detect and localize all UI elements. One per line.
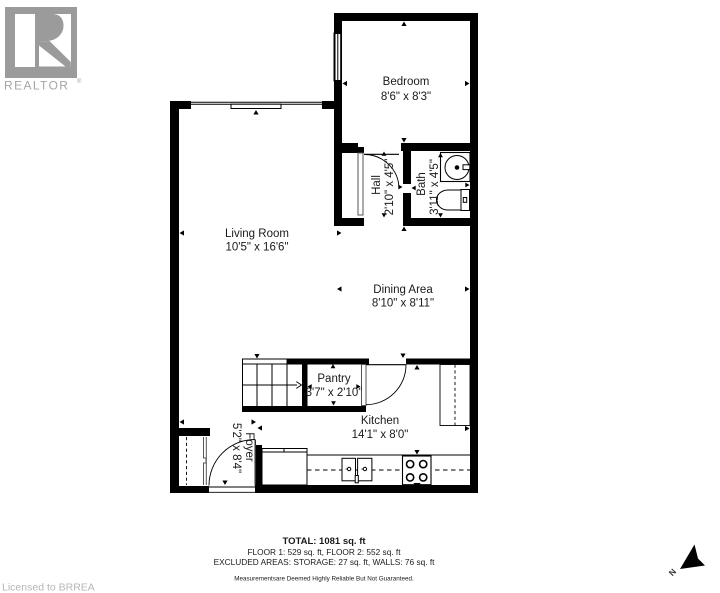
svg-text:Kitchen: Kitchen (361, 415, 399, 427)
svg-text:Pantry: Pantry (317, 373, 350, 385)
svg-text:REALTOR: REALTOR (4, 79, 69, 93)
svg-text:8'6" x 8'3": 8'6" x 8'3" (381, 91, 431, 103)
svg-text:8'10" x 8'11": 8'10" x 8'11" (372, 298, 434, 310)
svg-text:Bath: Bath (416, 172, 428, 196)
svg-text:5'2" x 8'4": 5'2" x 8'4" (230, 423, 242, 473)
svg-text:10'5" x 16'6": 10'5" x 16'6" (225, 242, 288, 254)
svg-text:®: ® (77, 78, 82, 85)
svg-text:Measurementsare Deemed Highly: Measurementsare Deemed Highly Reliable B… (234, 575, 414, 582)
svg-text:Hall: Hall (371, 175, 383, 195)
svg-text:Licensed to BRREA: Licensed to BRREA (2, 582, 95, 593)
svg-text:Living Room: Living Room (225, 228, 289, 240)
svg-text:Foyer: Foyer (243, 432, 255, 462)
svg-text:2'10" x 4'5": 2'10" x 4'5" (384, 159, 396, 216)
svg-text:Bedroom: Bedroom (383, 76, 430, 88)
svg-text:Dining Area: Dining Area (373, 284, 433, 296)
svg-text:TOTAL: 1081 sq. ft: TOTAL: 1081 sq. ft (282, 536, 366, 547)
svg-text:FLOOR 1: 529 sq. ft, FLOOR 2:: FLOOR 1: 529 sq. ft, FLOOR 2: 552 sq. ft (247, 547, 401, 557)
svg-text:EXCLUDED AREAS: STORAGE: 27 sq: EXCLUDED AREAS: STORAGE: 27 sq. ft, WALL… (214, 557, 436, 567)
svg-text:3'11" x 4'5": 3'11" x 4'5" (429, 159, 441, 215)
svg-text:3'7" x 2'10": 3'7" x 2'10" (306, 387, 363, 399)
svg-text:14'1" x 8'0": 14'1" x 8'0" (352, 429, 409, 441)
